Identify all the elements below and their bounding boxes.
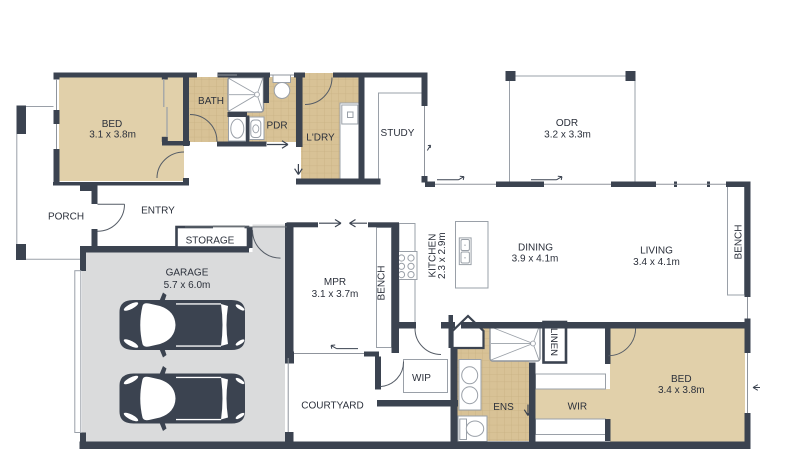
svg-text:DINING: DINING — [518, 242, 553, 253]
svg-text:PORCH: PORCH — [48, 212, 84, 223]
svg-text:WIP: WIP — [412, 373, 431, 384]
svg-text:BED: BED — [102, 119, 123, 130]
svg-text:BATH: BATH — [198, 96, 224, 107]
svg-text:L'DRY: L'DRY — [306, 133, 335, 144]
svg-text:2.3 x 2.9m: 2.3 x 2.9m — [437, 232, 448, 279]
svg-text:3.4 x 3.8m: 3.4 x 3.8m — [658, 385, 705, 396]
svg-text:5.7 x 6.0m: 5.7 x 6.0m — [164, 280, 211, 291]
svg-text:PDR: PDR — [266, 121, 287, 132]
svg-text:BENCH: BENCH — [376, 265, 387, 300]
svg-text:LIVING: LIVING — [640, 245, 673, 256]
svg-text:GARAGE: GARAGE — [166, 267, 209, 278]
svg-text:3.9 x 4.1m: 3.9 x 4.1m — [512, 254, 559, 265]
svg-text:STORAGE: STORAGE — [186, 236, 235, 247]
svg-text:3.4 x 4.1m: 3.4 x 4.1m — [633, 257, 680, 268]
svg-text:MPR: MPR — [324, 277, 346, 288]
svg-text:ENTRY: ENTRY — [141, 205, 175, 216]
svg-text:STUDY: STUDY — [381, 128, 415, 139]
svg-text:3.2 x 3.3m: 3.2 x 3.3m — [544, 129, 591, 140]
svg-text:ENS: ENS — [493, 402, 514, 413]
svg-text:BED: BED — [671, 374, 692, 385]
svg-text:LINEN: LINEN — [548, 328, 559, 356]
svg-text:COURTYARD: COURTYARD — [301, 401, 363, 412]
svg-text:ODR: ODR — [556, 118, 578, 129]
svg-text:3.1 x 3.7m: 3.1 x 3.7m — [312, 289, 359, 300]
svg-text:BENCH: BENCH — [734, 224, 745, 259]
svg-text:WIR: WIR — [568, 402, 587, 413]
svg-text:3.1 x 3.8m: 3.1 x 3.8m — [89, 130, 136, 141]
